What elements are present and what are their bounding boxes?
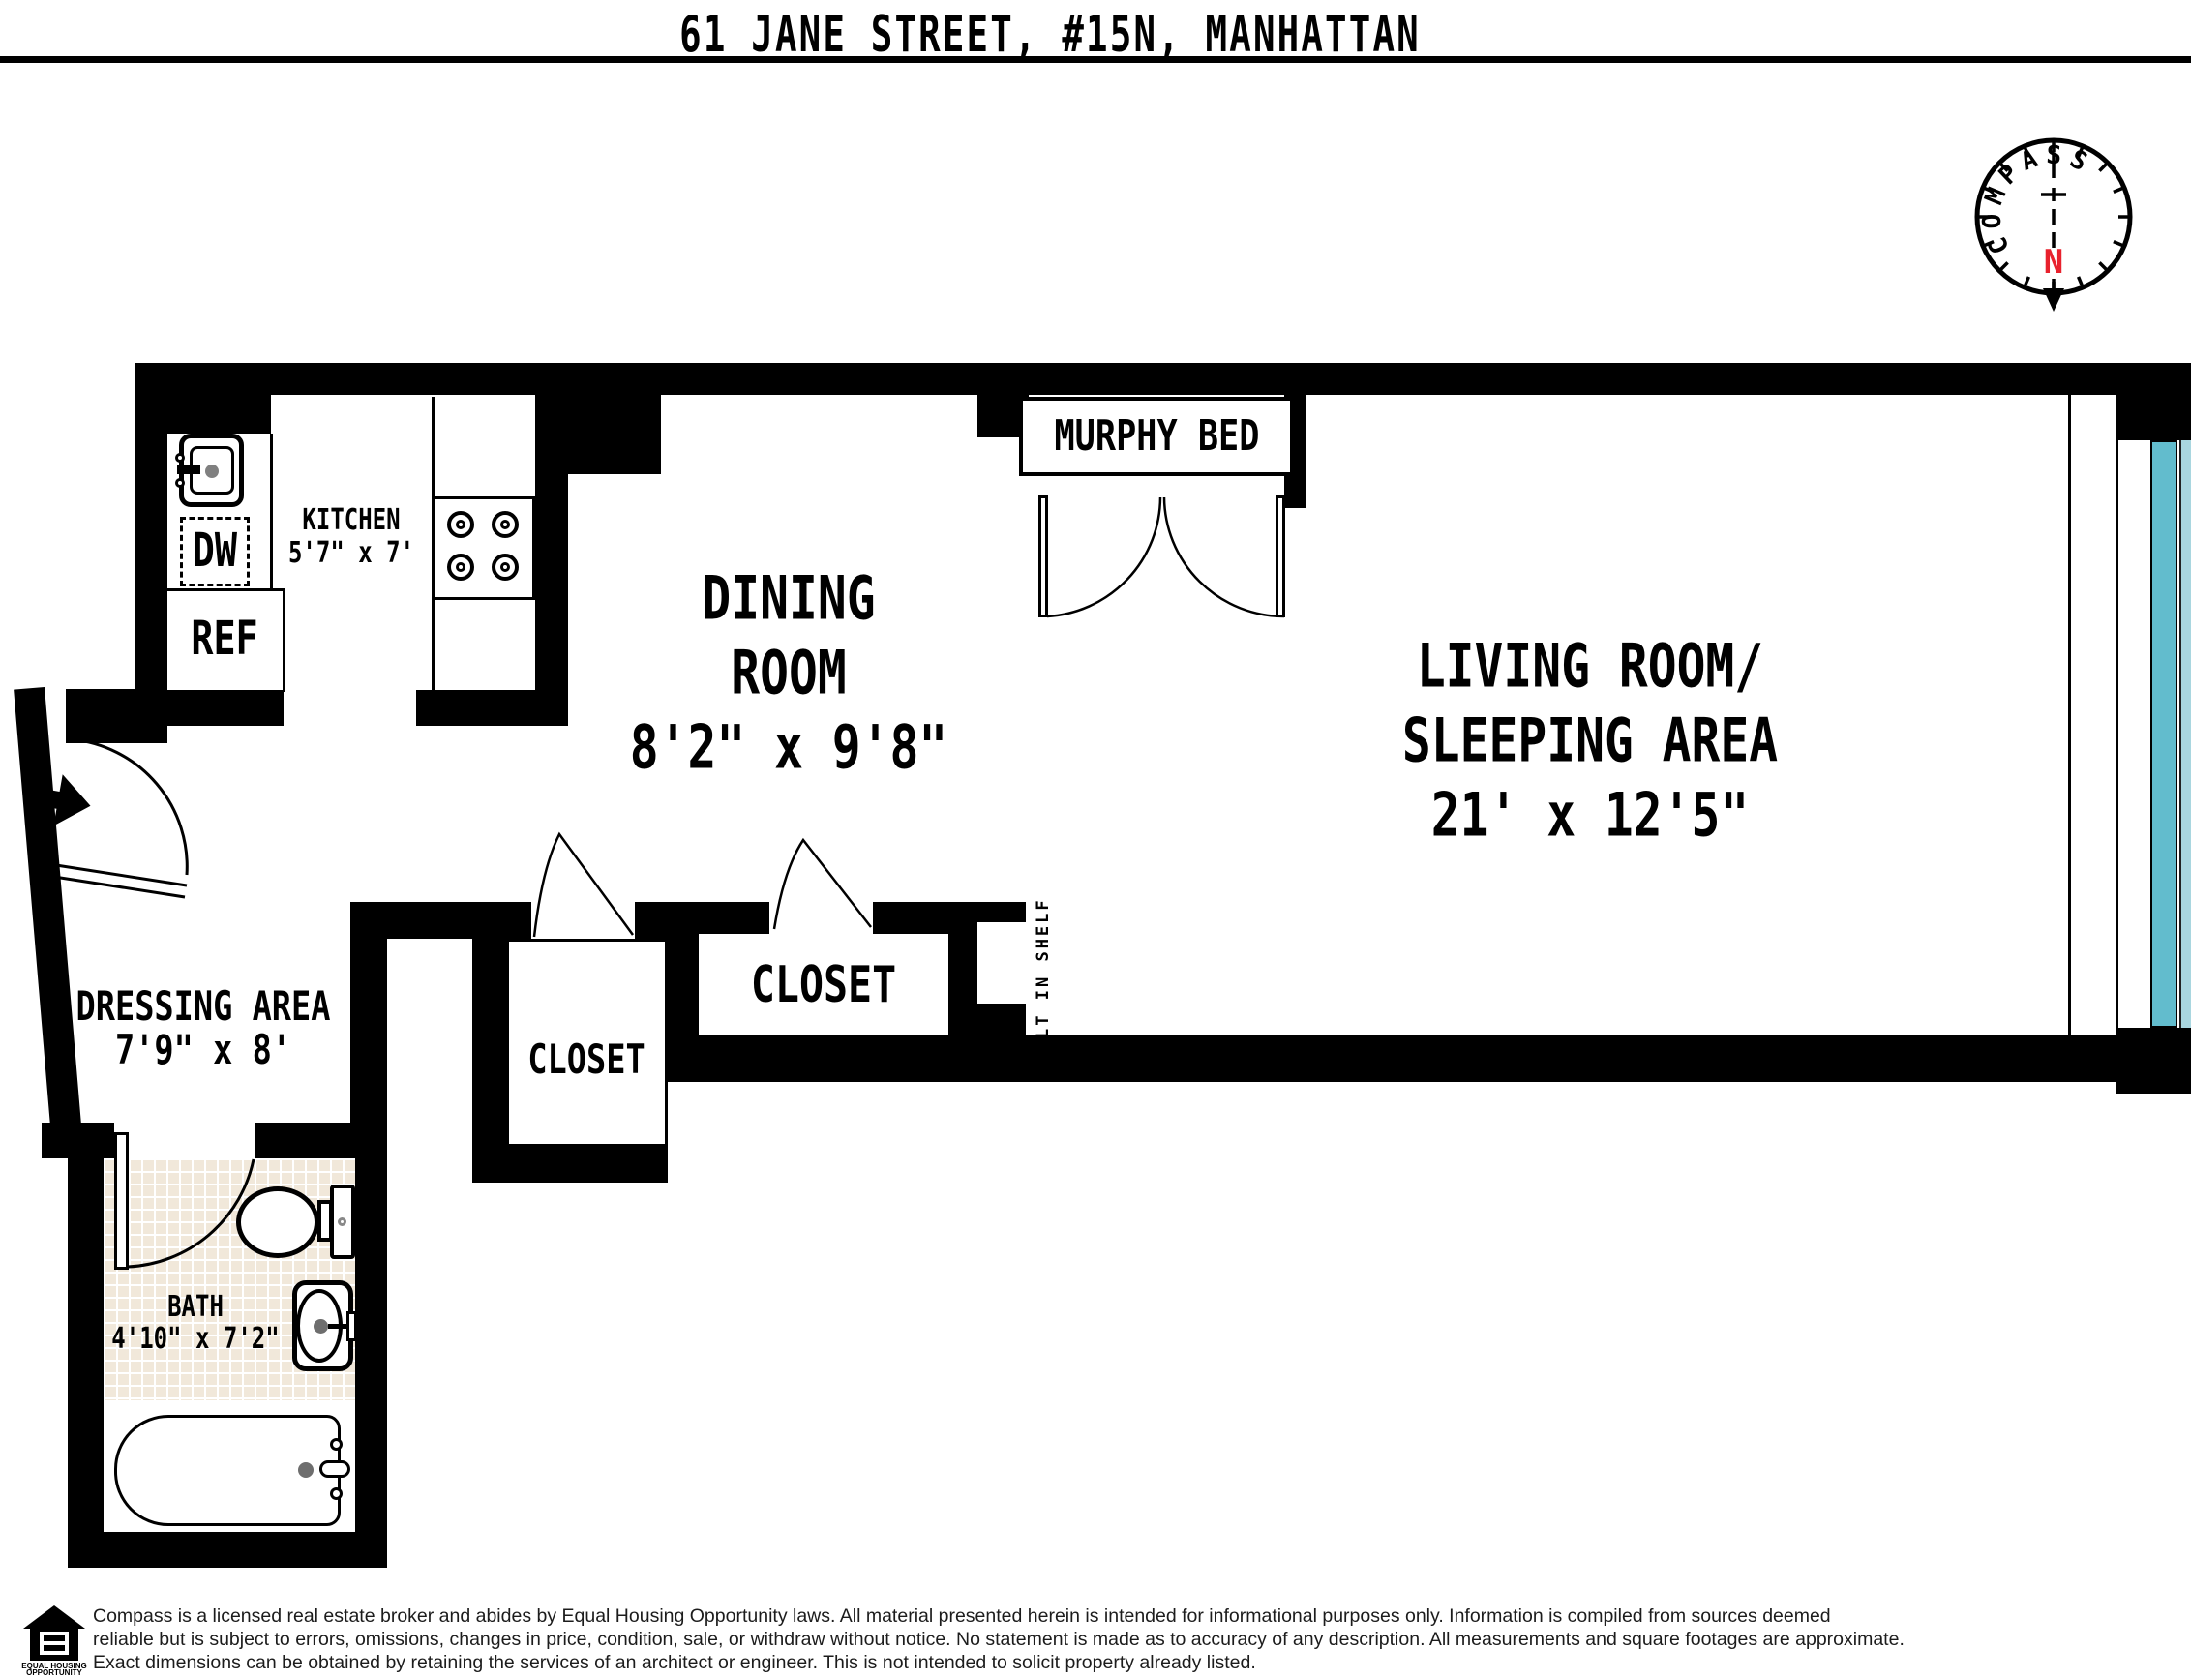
dining-room-label: DINING ROOM 8'2" x 9'8" [630,561,947,785]
footer-line: reliable but is subject to errors, omiss… [93,1628,2183,1651]
dressing-area-label: DRESSING AREA 7'9" x 8' [76,984,331,1071]
built-in-shelf-label: BUILT IN SHELF [1034,897,1053,1076]
closet-large-label: CLOSET [751,955,896,1015]
kitchen-label: KITCHEN 5'7" x 7' [288,504,414,570]
compass-north-label: N [2044,243,2063,282]
closet-small-label: CLOSET [527,1035,645,1084]
entry-arrow [23,769,95,832]
floorplan-page: 61 JANE STREET, #15N, MANHATTAN [0,0,2191,1680]
equal-housing-logo: EQUAL HOUSING OPPORTUNITY [21,1605,87,1676]
compass-label-curved: COMPASS [1978,140,2098,257]
svg-text:COMPASS: COMPASS [1978,140,2098,257]
svg-text:OPPORTUNITY: OPPORTUNITY [26,1668,82,1676]
footer-line: Compass is a licensed real estate broker… [93,1605,2183,1628]
bath-label: BATH 4'10" x 7'2" [111,1291,279,1355]
compass: COMPASS N [1966,132,2141,321]
living-room-label: LIVING ROOM/ SLEEPING AREA 21' x 12'5" [1402,629,1778,853]
compass-south-arrow [2043,288,2064,312]
footer-disclaimer: Compass is a licensed real estate broker… [93,1605,2183,1674]
footer-line: Exact dimensions can be obtained by reta… [93,1651,2183,1674]
plan-linework [0,0,2191,1680]
